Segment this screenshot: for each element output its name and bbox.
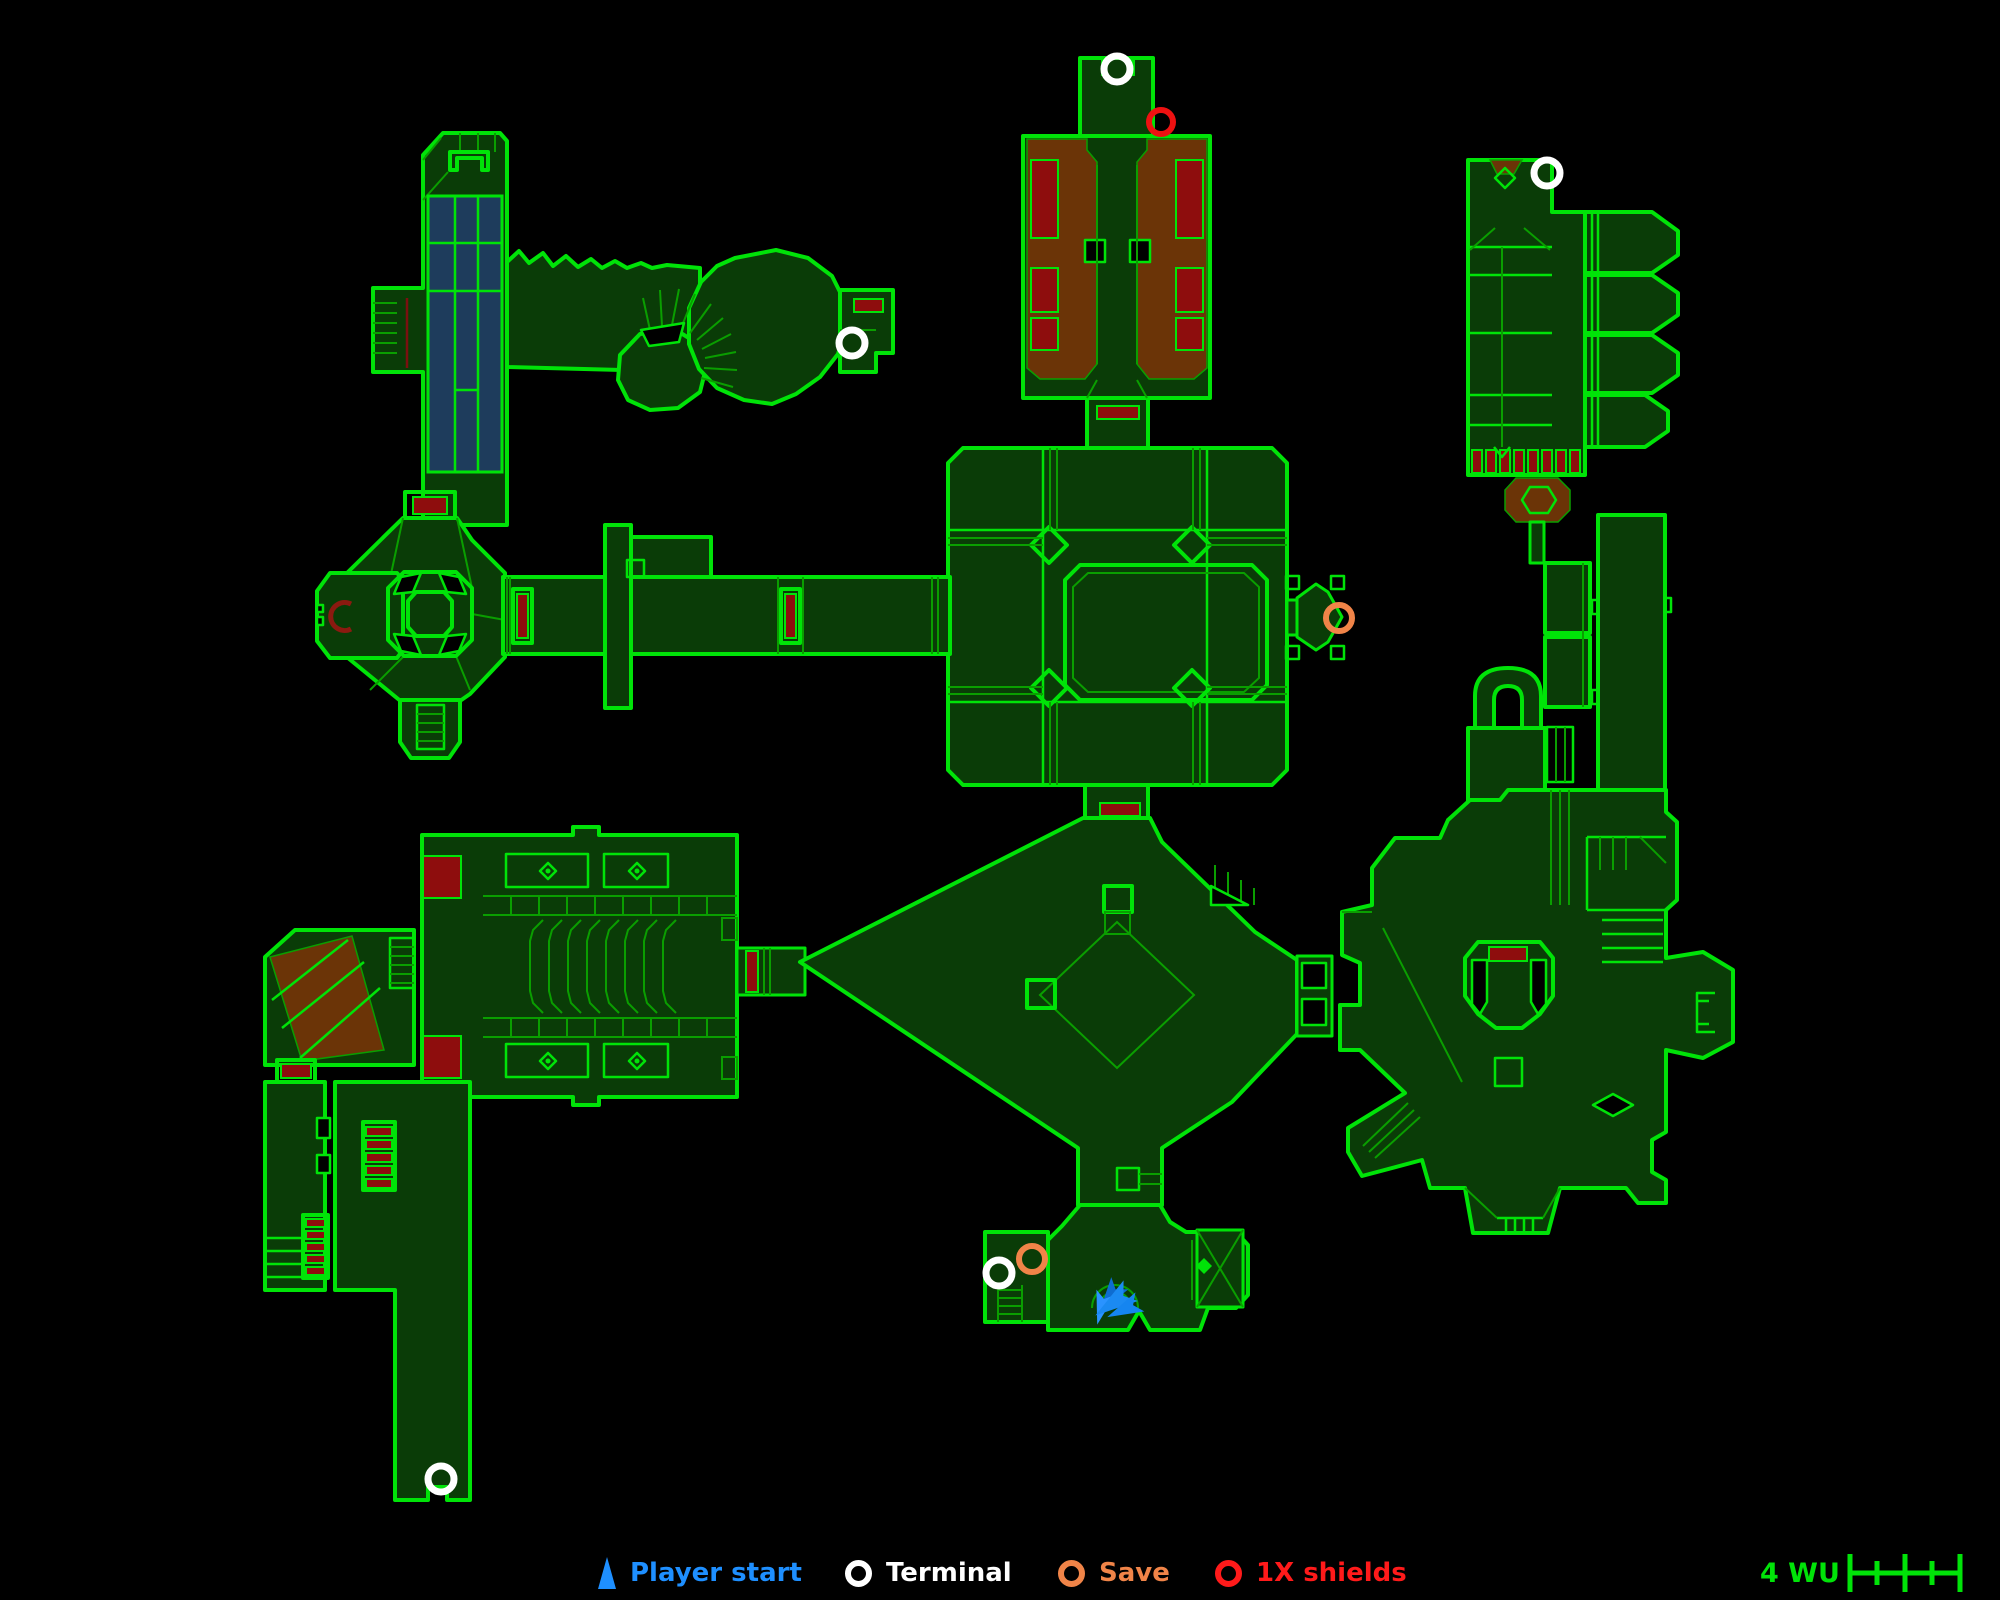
legend-label-player-start: Player start	[630, 1558, 802, 1588]
legend-item-terminal: Terminal	[845, 1550, 1012, 1596]
scale-bar: 4 WU	[1760, 1550, 1976, 1596]
scale-label: 4 WU	[1760, 1558, 1840, 1589]
player-start-icon	[598, 1557, 616, 1589]
save-ring-icon	[1058, 1560, 1085, 1587]
scale-ruler-icon	[1846, 1550, 1976, 1596]
structure-south-diamond-room	[800, 818, 1332, 1330]
structure-southwest-arena	[265, 827, 805, 1500]
legend-label-save: Save	[1099, 1558, 1170, 1588]
shields-ring-icon	[1215, 1560, 1242, 1587]
structure-southeast-complex	[1340, 790, 1733, 1233]
legend-item-player-start: Player start	[598, 1550, 802, 1596]
automap-canvas	[0, 0, 2000, 1600]
structure-northeast-complex	[1468, 160, 1678, 848]
structure-central-cross	[948, 448, 1344, 818]
terminal-ring-icon	[845, 1560, 872, 1587]
corridor-west	[503, 525, 950, 708]
legend-label-terminal: Terminal	[886, 1558, 1012, 1588]
structure-north-red-hall	[1023, 58, 1210, 450]
legend-item-save: Save	[1058, 1550, 1170, 1596]
legend-item-shields: 1X shields	[1215, 1550, 1407, 1596]
legend-label-shields: 1X shields	[1256, 1558, 1407, 1588]
